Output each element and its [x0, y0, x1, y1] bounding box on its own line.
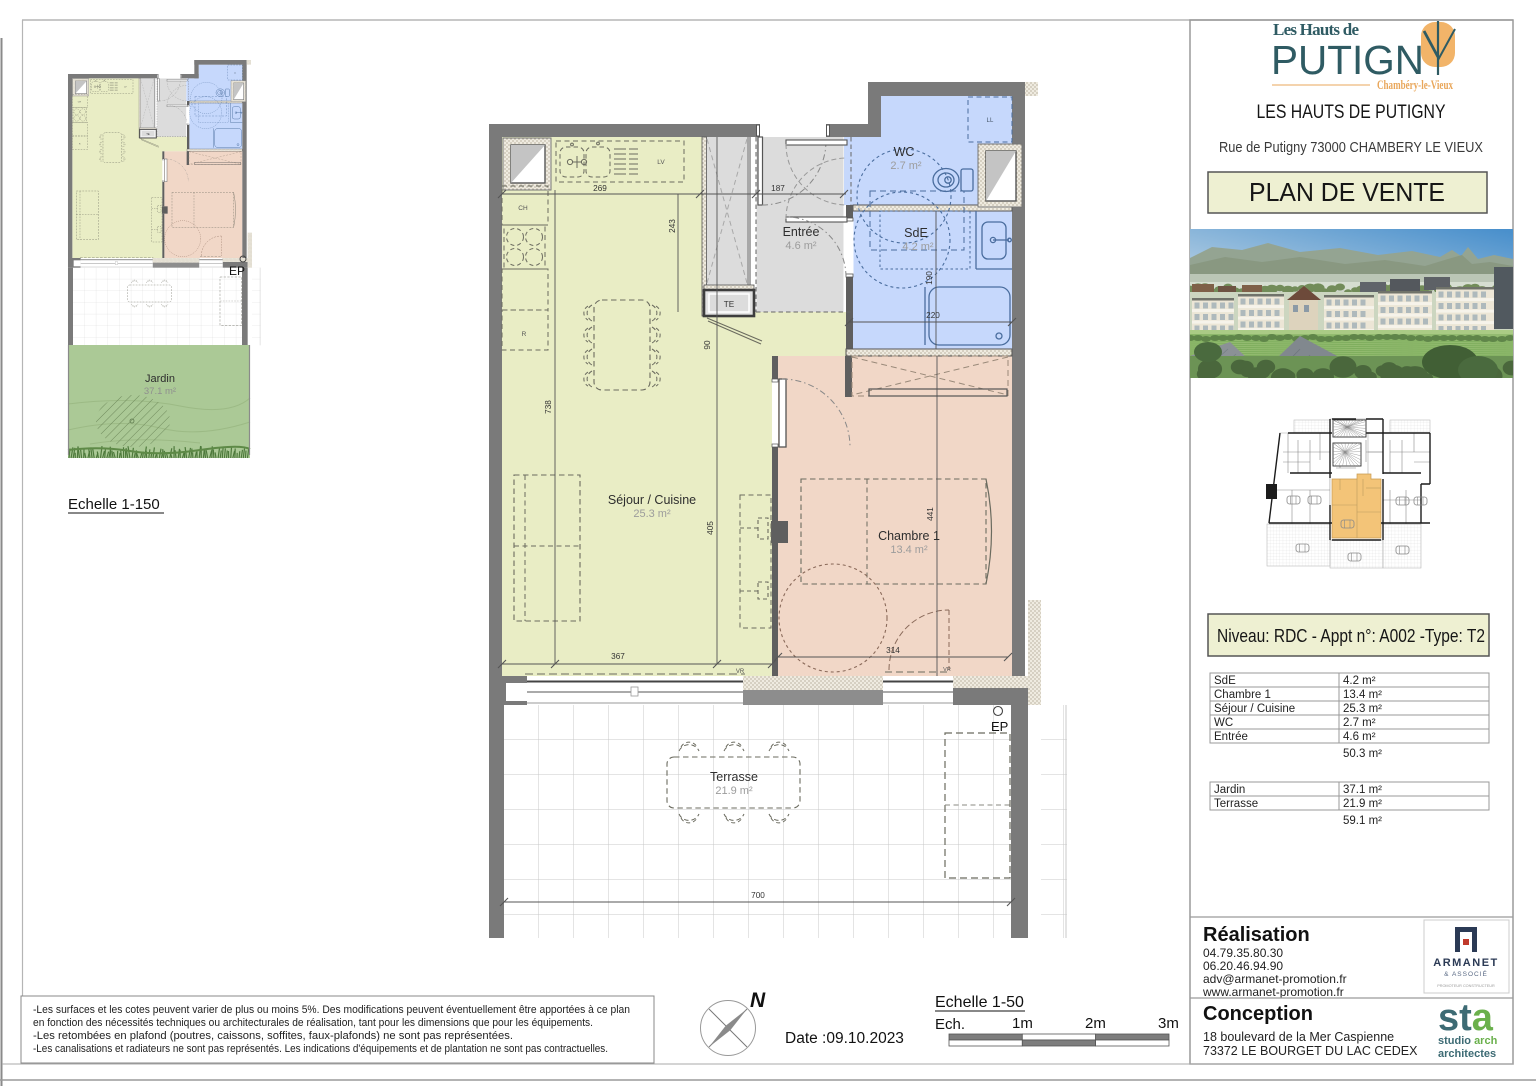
svg-text:Rue de Putigny 73000 CHAMBERY: Rue de Putigny 73000 CHAMBERY LE VIEUX	[1219, 140, 1483, 156]
svg-text:Terrasse: Terrasse	[1214, 798, 1258, 810]
svg-text:N: N	[750, 989, 766, 1012]
svg-text:Niveau: RDC - Appt n°: A002 -: Niveau: RDC - Appt n°: A002 -Type: T2	[1217, 626, 1485, 646]
svg-text:13.4 m²: 13.4 m²	[890, 544, 928, 556]
svg-text:Echelle 1-50: Echelle 1-50	[935, 994, 1024, 1011]
svg-text:studio arch: studio arch	[1438, 1035, 1498, 1047]
svg-text:PROMOTEUR CONSTRUCTEUR: PROMOTEUR CONSTRUCTEUR	[1437, 984, 1495, 988]
svg-text:700: 700	[751, 891, 765, 900]
svg-text:18 boulevard de la Mer Caspien: 18 boulevard de la Mer Caspienne	[1203, 1030, 1394, 1044]
svg-text:Echelle 1-150: Echelle 1-150	[68, 496, 160, 513]
svg-text:738: 738	[544, 400, 553, 414]
svg-text:4.2 m²: 4.2 m²	[902, 241, 934, 253]
svg-text:2.7 m²: 2.7 m²	[890, 160, 922, 172]
svg-text:www.armanet-promotion.fr: www.armanet-promotion.fr	[1202, 985, 1344, 999]
svg-text:3m: 3m	[1158, 1015, 1179, 1032]
svg-text:Date :09.10.2023: Date :09.10.2023	[785, 1030, 904, 1047]
svg-text:VR: VR	[736, 669, 745, 675]
svg-text:405: 405	[706, 521, 715, 535]
svg-text:sta: sta	[1438, 997, 1494, 1039]
svg-text:Terrasse: Terrasse	[710, 770, 758, 784]
svg-text:367: 367	[611, 652, 625, 661]
svg-text:314: 314	[886, 646, 900, 655]
svg-text:EP: EP	[229, 264, 245, 278]
svg-text:Conception: Conception	[1203, 1003, 1313, 1025]
svg-text:441: 441	[926, 507, 935, 521]
svg-text:Séjour / Cuisine: Séjour / Cuisine	[608, 493, 696, 507]
svg-text:ARMANET: ARMANET	[1433, 957, 1499, 969]
svg-text:SdE: SdE	[904, 226, 928, 240]
svg-text:EP: EP	[991, 719, 1008, 734]
svg-text:en fonction des nécessités tec: en fonction des nécessités techniques ou…	[33, 1017, 593, 1029]
svg-text:50.3 m²: 50.3 m²	[1343, 748, 1382, 760]
svg-text:Chambre 1: Chambre 1	[878, 529, 940, 543]
svg-text:220: 220	[926, 311, 940, 320]
svg-text:59.1 m²: 59.1 m²	[1343, 815, 1382, 827]
svg-text:Entrée: Entrée	[783, 225, 820, 239]
svg-text:Jardin: Jardin	[1214, 784, 1245, 796]
svg-text:PUTIGN: PUTIGN	[1271, 37, 1424, 83]
svg-text:243: 243	[668, 219, 677, 233]
svg-text:Séjour / Cuisine: Séjour / Cuisine	[1214, 703, 1295, 715]
svg-text:architectes: architectes	[1438, 1048, 1496, 1060]
svg-text:4.2 m²: 4.2 m²	[1343, 675, 1376, 687]
svg-text:2.7 m²: 2.7 m²	[1343, 717, 1376, 729]
svg-text:Chambéry-le-Vieux: Chambéry-le-Vieux	[1377, 78, 1454, 92]
svg-text:Chambre 1: Chambre 1	[1214, 689, 1271, 701]
svg-text:Jardin: Jardin	[145, 373, 175, 385]
svg-text:37.1 m²: 37.1 m²	[1343, 784, 1382, 796]
svg-text:WC: WC	[894, 145, 915, 159]
svg-text:-Les surfaces et les cotes peu: -Les surfaces et les cotes peuvent varie…	[33, 1004, 630, 1016]
svg-text:Réalisation: Réalisation	[1203, 924, 1310, 946]
svg-text:VR: VR	[943, 667, 951, 673]
svg-text:269: 269	[593, 184, 607, 193]
svg-text:2m: 2m	[1085, 1015, 1106, 1032]
svg-text:4.6 m²: 4.6 m²	[1343, 731, 1376, 743]
svg-text:PLAN DE VENTE: PLAN DE VENTE	[1249, 177, 1445, 207]
svg-text:Entrée: Entrée	[1214, 731, 1248, 743]
svg-text:04.79.35.80.30: 04.79.35.80.30	[1203, 946, 1283, 960]
svg-text:LES HAUTS DE PUTIGNY: LES HAUTS DE PUTIGNY	[1257, 102, 1446, 123]
svg-text:190: 190	[925, 271, 934, 285]
svg-text:21.9 m²: 21.9 m²	[715, 785, 753, 797]
svg-text:& ASSOCIÉ: & ASSOCIÉ	[1444, 969, 1488, 978]
svg-text:4.6 m²: 4.6 m²	[785, 240, 817, 252]
svg-text:-Les canalisations et radiateu: -Les canalisations et radiateurs ne sont…	[33, 1043, 608, 1055]
svg-text:06.20.46.94.90: 06.20.46.94.90	[1203, 959, 1283, 973]
svg-text:25.3 m²: 25.3 m²	[1343, 703, 1382, 715]
svg-text:-Les retombées en plafond (pou: -Les retombées en plafond (poutres, cais…	[33, 1030, 513, 1042]
svg-text:25.3 m²: 25.3 m²	[633, 508, 671, 520]
svg-text:90: 90	[703, 340, 712, 350]
svg-text:adv@armanet-promotion.fr: adv@armanet-promotion.fr	[1203, 972, 1347, 986]
svg-text:73372 LE BOURGET DU LAC CEDEX: 73372 LE BOURGET DU LAC CEDEX	[1203, 1044, 1418, 1058]
svg-text:187: 187	[771, 184, 785, 193]
svg-text:Ech.: Ech.	[935, 1016, 965, 1033]
svg-text:37.1 m²: 37.1 m²	[144, 386, 176, 397]
svg-text:WC: WC	[1214, 717, 1233, 729]
svg-text:21.9 m²: 21.9 m²	[1343, 798, 1382, 810]
svg-text:SdE: SdE	[1214, 675, 1236, 687]
svg-text:1m: 1m	[1012, 1015, 1033, 1032]
svg-text:13.4 m²: 13.4 m²	[1343, 689, 1382, 701]
